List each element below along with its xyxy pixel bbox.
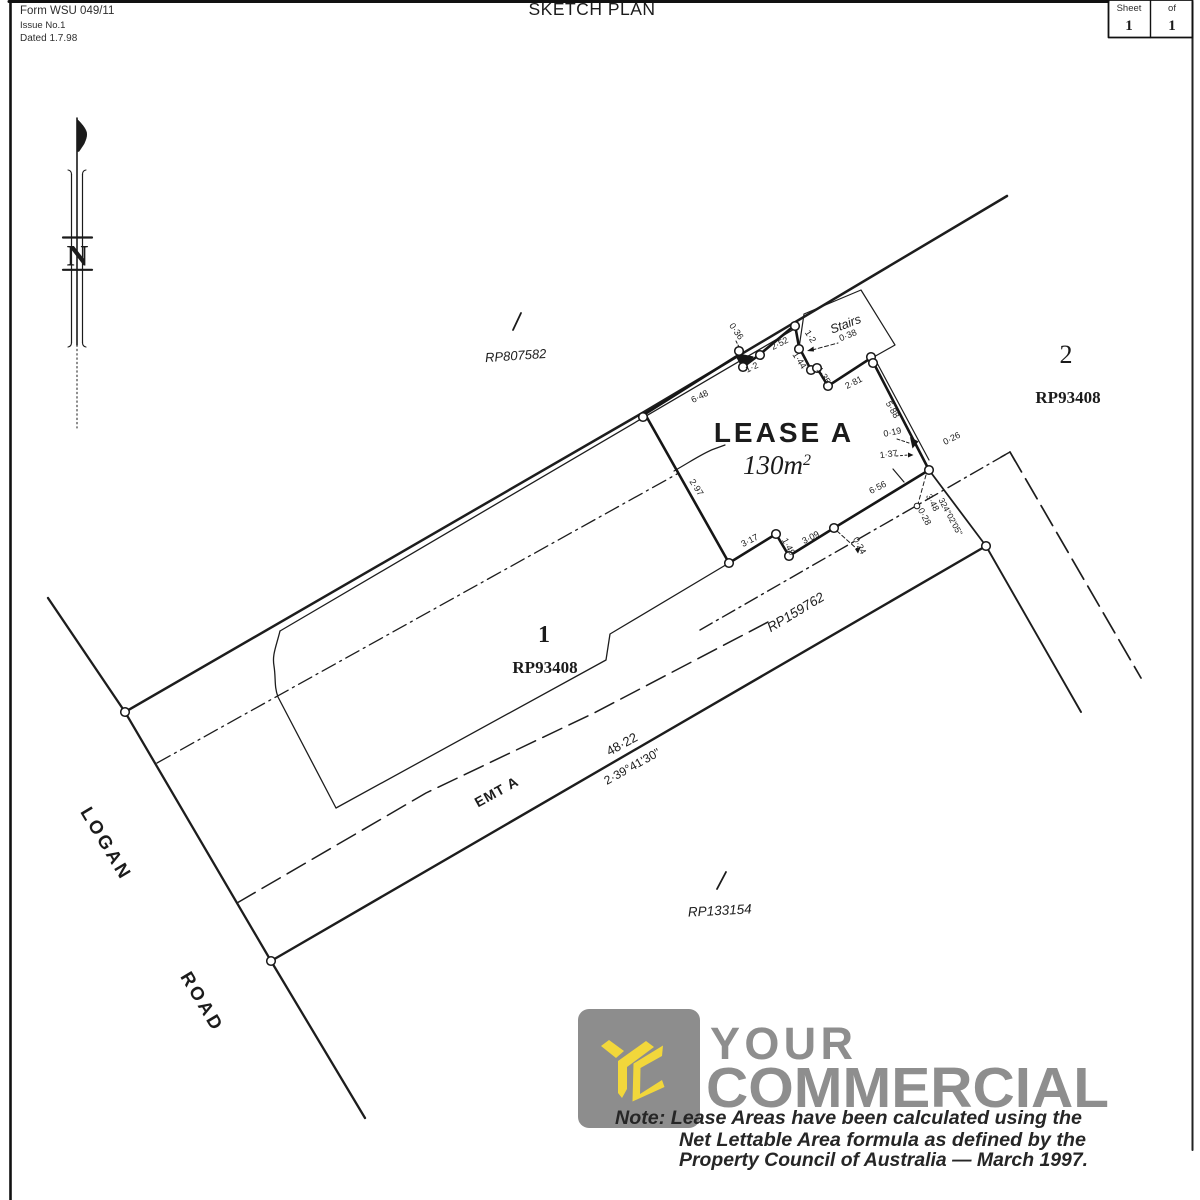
svg-text:2: 2 bbox=[1060, 340, 1073, 369]
svg-text:of: of bbox=[1168, 3, 1176, 14]
svg-text:1: 1 bbox=[538, 622, 550, 648]
svg-text:Issue No.1: Issue No.1 bbox=[20, 20, 65, 31]
svg-text:N: N bbox=[67, 240, 89, 273]
svg-text:Net Lettable Area formula as d: Net Lettable Area formula as defined by … bbox=[679, 1130, 1086, 1151]
svg-text:Dated 1.7.98: Dated 1.7.98 bbox=[20, 33, 78, 44]
svg-text:RP93408: RP93408 bbox=[512, 658, 577, 677]
svg-text:1: 1 bbox=[1125, 18, 1133, 34]
svg-text:LEASE: LEASE bbox=[714, 417, 822, 448]
svg-text:Form WSU 049/11: Form WSU 049/11 bbox=[20, 5, 114, 17]
svg-text:130m2: 130m2 bbox=[743, 450, 811, 480]
svg-text:Note: Lease Areas have been ca: Note: Lease Areas have been calculated u… bbox=[615, 1108, 1082, 1129]
svg-text:Property Council of Australia: Property Council of Australia — March 19… bbox=[679, 1150, 1088, 1171]
svg-text:Sheet: Sheet bbox=[1117, 3, 1142, 14]
svg-text:A: A bbox=[831, 417, 851, 448]
svg-text:RP93408: RP93408 bbox=[1035, 388, 1100, 407]
svg-text:1: 1 bbox=[1168, 18, 1176, 34]
svg-text:SKETCH PLAN: SKETCH PLAN bbox=[528, 0, 655, 19]
